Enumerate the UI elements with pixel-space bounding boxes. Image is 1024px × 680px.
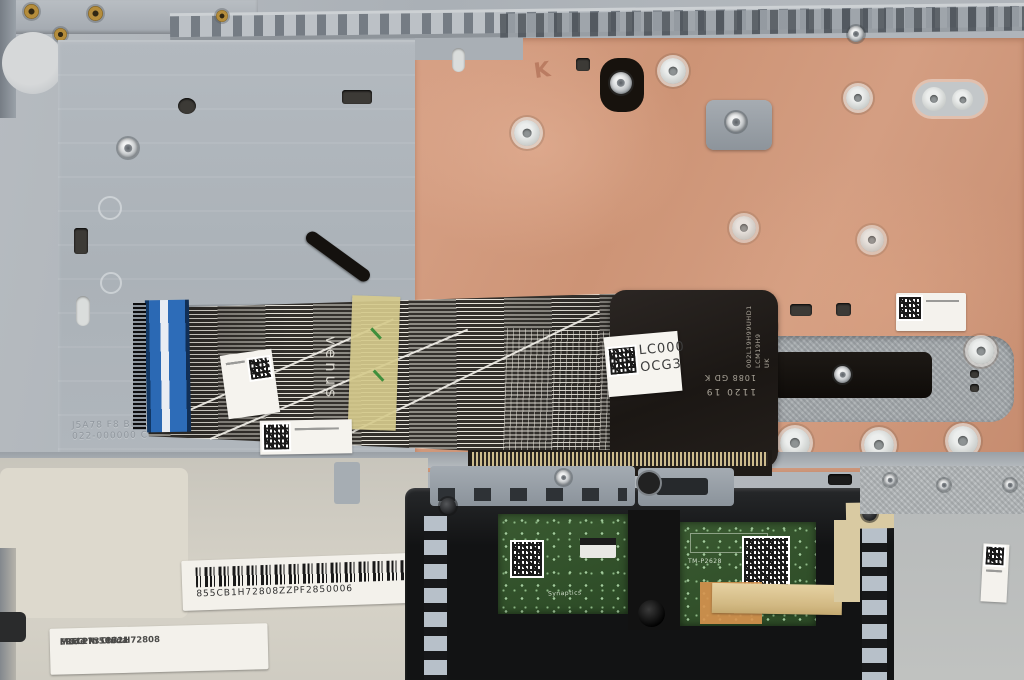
tape-mark	[373, 370, 385, 382]
screw-boss	[732, 216, 756, 240]
tape-strip	[834, 520, 860, 602]
bottom-left-notch	[0, 612, 26, 642]
qr-code	[264, 424, 289, 449]
plate-slot	[74, 228, 88, 254]
screw	[118, 138, 138, 158]
touchpad-bracket	[430, 466, 635, 506]
adhesive-pad-column	[424, 516, 447, 680]
channel-notch	[970, 384, 979, 392]
emboss-ring	[100, 272, 122, 294]
micro-text	[226, 358, 246, 361]
micro-text	[295, 425, 345, 426]
screw	[556, 470, 571, 485]
screw	[726, 112, 746, 132]
qr-code	[512, 542, 542, 576]
membrane-print-pn: 002L19H99UHD1	[745, 305, 754, 368]
fru-vendor: LCFC	[60, 635, 84, 651]
membrane-print-model: LCM19H9 UK	[754, 333, 772, 368]
plate-slot	[342, 90, 372, 104]
ribbon-qr-label-rotated	[220, 349, 280, 420]
qr-code	[985, 547, 1004, 566]
frame-slot	[828, 474, 852, 485]
screw-boss	[514, 120, 540, 146]
copper-cutout	[452, 48, 465, 72]
screw	[938, 479, 950, 491]
copper-slot	[576, 58, 590, 71]
brass-insert	[216, 10, 228, 22]
frame-hole	[636, 470, 662, 496]
flex-connector-blue	[145, 300, 191, 433]
screw	[1004, 479, 1016, 491]
adhesive-pad-column	[862, 528, 887, 680]
membrane-tail-strip	[772, 352, 932, 398]
copper-qr-label	[896, 293, 966, 331]
copper-slot	[790, 304, 812, 316]
screw	[610, 72, 632, 94]
channel-notch	[970, 370, 979, 378]
ribbon-qr-label	[260, 419, 353, 455]
brass-insert	[24, 4, 39, 19]
plate-hole	[178, 98, 196, 114]
screw	[884, 474, 896, 486]
frame-tab	[334, 462, 360, 504]
kapton-tape	[348, 295, 401, 431]
copper-emboss-mark: K	[532, 57, 551, 83]
screw-boss	[968, 338, 994, 364]
membrane-part-label: LC000 OCG3	[604, 331, 683, 397]
plate-over-copper	[415, 38, 523, 60]
flex-connector-contacts	[133, 303, 146, 430]
flex-brand-text: venus	[322, 336, 340, 401]
copper-slot	[836, 303, 851, 316]
round-pad	[2, 32, 64, 94]
screw-boss	[952, 89, 973, 110]
emboss-ring	[98, 196, 122, 220]
side-qr-label	[981, 543, 1010, 602]
ffc-connector	[580, 538, 616, 558]
touchpad-ffc-cable	[712, 583, 843, 615]
touchpad-model-text: TM-P2628	[688, 558, 722, 565]
qr-code	[744, 538, 788, 586]
qr-code	[609, 347, 637, 375]
rubber-dome	[638, 600, 665, 627]
screw-boss	[660, 58, 686, 84]
screw-boss	[860, 228, 884, 252]
screw	[834, 366, 851, 383]
membrane-print-line1: 1120 19	[705, 386, 756, 396]
palmrest-light-patch	[0, 468, 188, 618]
screw-boss	[846, 86, 870, 110]
plate-cutout	[76, 296, 90, 326]
qr-code	[899, 297, 921, 319]
screw-boss	[922, 87, 946, 111]
touchpad-vendor-text: Synaptics	[548, 589, 582, 597]
tape-mark	[370, 327, 382, 339]
micro-text	[986, 568, 1004, 569]
qr-code	[249, 357, 272, 380]
screw	[848, 26, 864, 42]
membrane-print-line2: 1088 GD K	[704, 373, 756, 382]
membrane-printed-text: 1120 19 1088 GD K 002L19H99UHD1 LCM19H9 …	[676, 298, 756, 398]
palmrest-assembly-photo: J5A78 F8 BRACKET 022-000000 C K	[0, 0, 1024, 680]
fru-info-label: MO: 17318721 Made in China FRU PN:5CB1H7…	[49, 623, 268, 675]
screw-dark	[440, 498, 456, 514]
brass-insert	[88, 6, 103, 21]
